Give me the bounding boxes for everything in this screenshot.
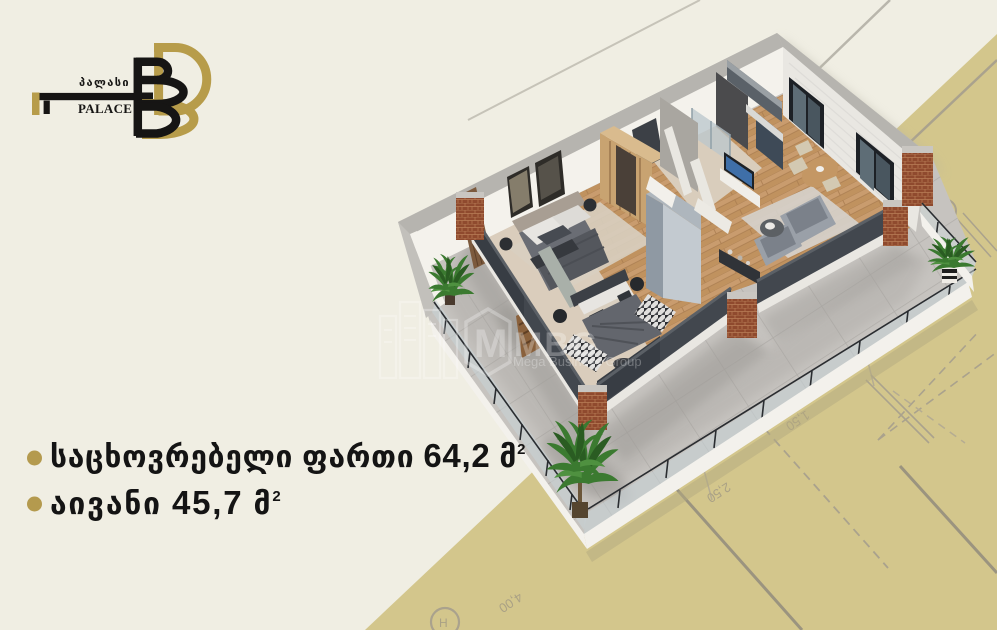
svg-text:საცხოვრებელი ფართი 64,2 მ2: საცხოვრებელი ფართი 64,2 მ2 [50,437,526,474]
svg-text:H: H [439,616,448,630]
svg-text:PALACE: PALACE [78,101,132,116]
svg-text:M: M [474,322,507,366]
svg-text:Mega Business Group: Mega Business Group [513,354,642,369]
svg-text:აივანი 45,7 მ2: აივანი 45,7 მ2 [50,484,283,521]
svg-text:პალასი: პალასი [79,77,130,89]
